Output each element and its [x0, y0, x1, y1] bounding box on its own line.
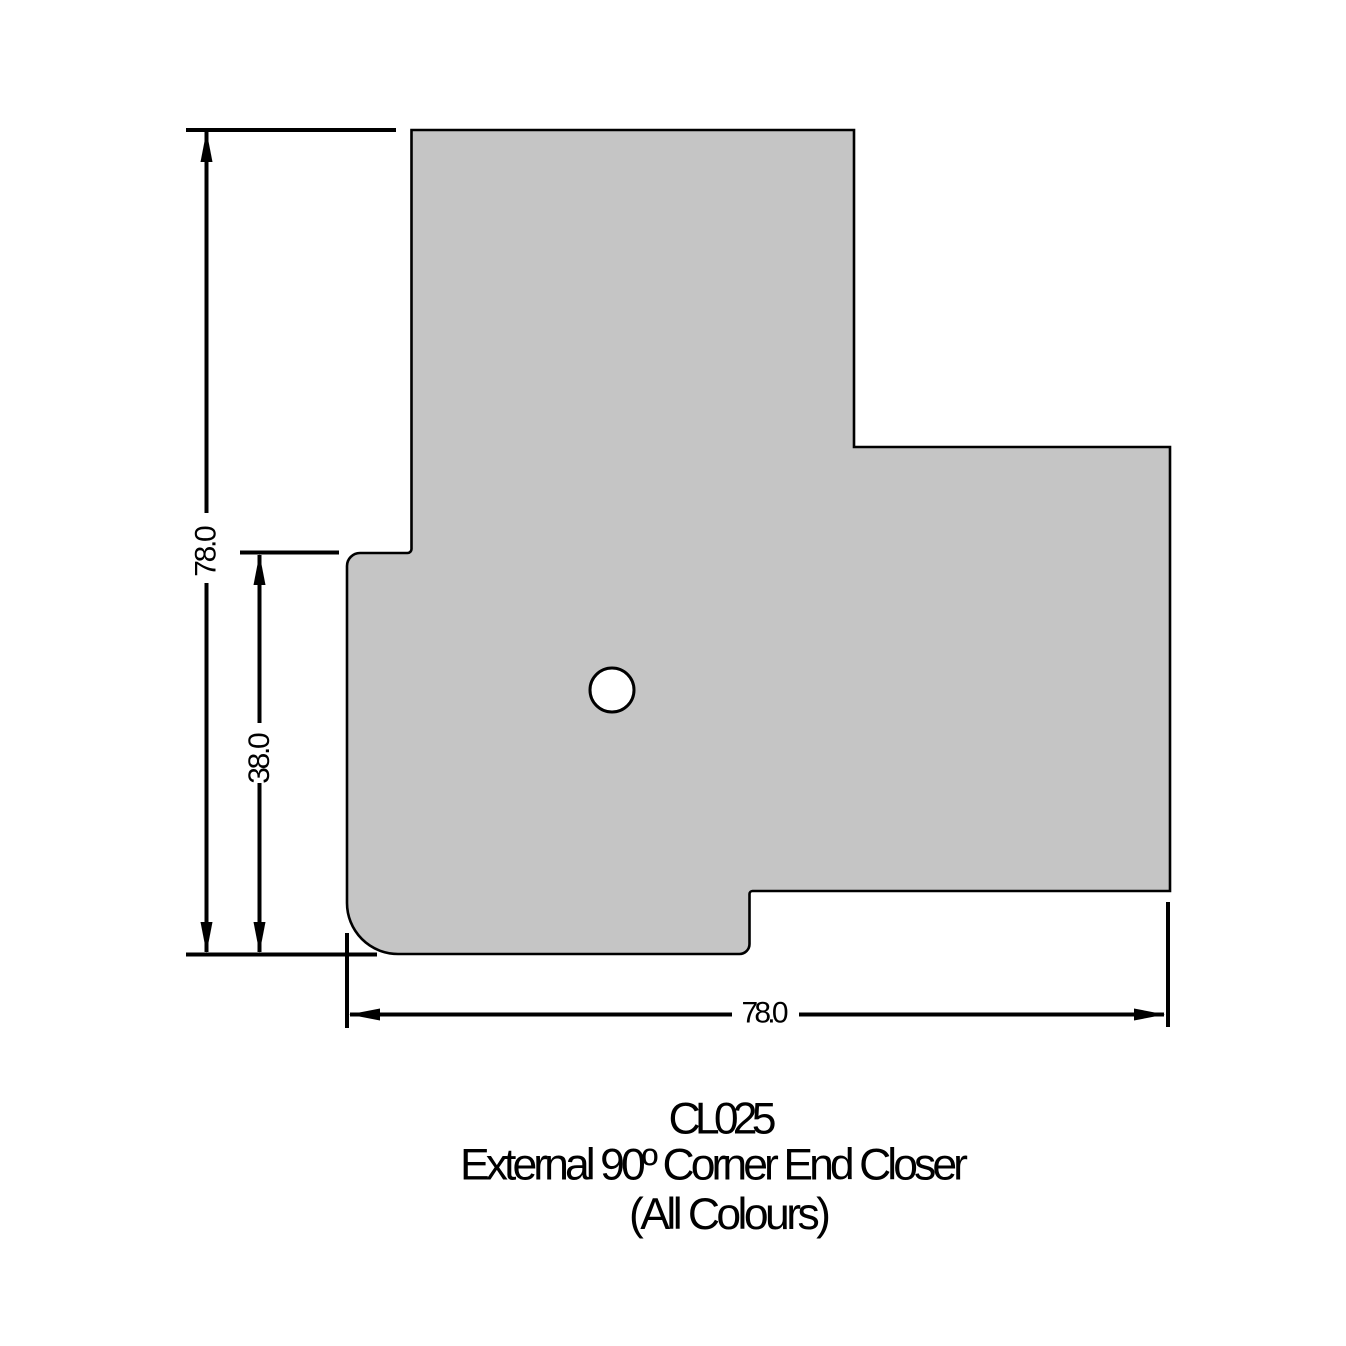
- svg-text:78.0: 78.0: [190, 525, 223, 577]
- svg-text:(All Colours): (All Colours): [629, 1190, 831, 1239]
- svg-text:External 90º Corner End Closer: External 90º Corner End Closer: [460, 1141, 968, 1190]
- svg-text:CL025: CL025: [669, 1095, 777, 1144]
- svg-text:78.0: 78.0: [742, 997, 789, 1030]
- svg-text:38.0: 38.0: [243, 732, 276, 784]
